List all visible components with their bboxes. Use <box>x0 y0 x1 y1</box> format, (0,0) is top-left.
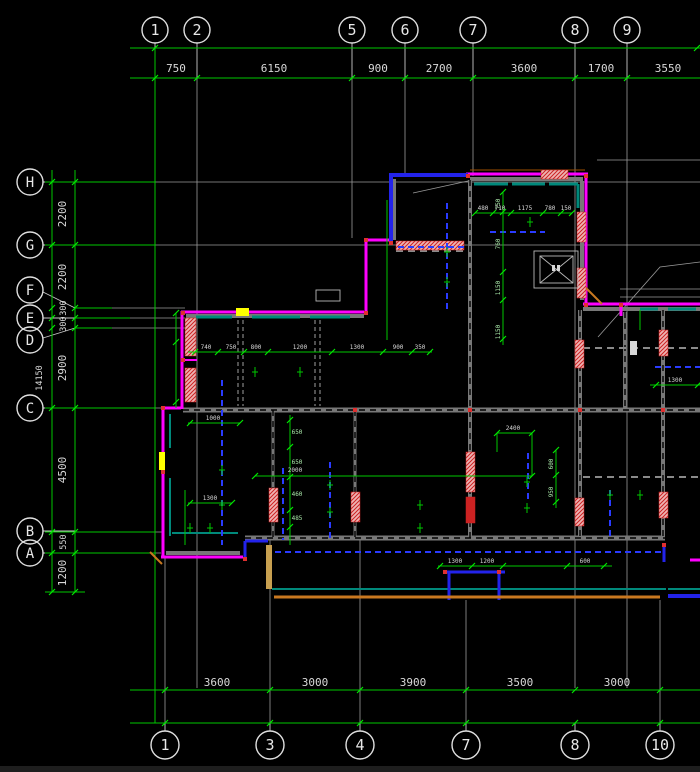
structural-plan-canvas: 1 2 5 6 7 8 9 1 3 4 7 8 10 H G F E D C B… <box>0 0 700 772</box>
svg-text:2400: 2400 <box>506 425 521 432</box>
dim-top-5: 1700 <box>588 62 615 75</box>
svg-text:1300: 1300 <box>668 377 683 384</box>
svg-text:900: 900 <box>393 344 404 351</box>
dim-bot-3: 3500 <box>507 676 534 689</box>
svg-text:600: 600 <box>580 558 591 565</box>
svg-text:1300: 1300 <box>203 495 218 502</box>
dimension-labels: 750 6150 900 2700 3600 1700 3550 3600 30… <box>35 62 681 689</box>
dim-left-6: 550 <box>59 534 69 549</box>
svg-text:485: 485 <box>292 515 303 522</box>
svg-text:1150: 1150 <box>495 280 502 295</box>
elevator-shaft-symbol <box>534 251 578 288</box>
dim-left-overall: 14150 <box>35 365 45 391</box>
building-walls <box>150 170 700 600</box>
dim-left-5: 4500 <box>56 457 69 484</box>
dim-top-4: 3600 <box>511 62 538 75</box>
grid-label-top-7: 7 <box>468 21 477 39</box>
svg-text:1200: 1200 <box>293 344 308 351</box>
beam-centerlines <box>222 203 700 552</box>
grid-label-top-1: 1 <box>150 21 159 39</box>
dim-left-3: 300 <box>59 316 69 331</box>
window-symbol <box>316 290 340 301</box>
svg-text:800: 800 <box>251 344 262 351</box>
grid-label-left-F: F <box>26 283 34 299</box>
dimension-lines <box>45 45 700 726</box>
svg-text:650: 650 <box>292 459 303 466</box>
grid-bubble-labels: 1 2 5 6 7 8 9 1 3 4 7 8 10 H G F E D C B… <box>26 21 669 754</box>
dim-left-4: 2900 <box>56 355 69 382</box>
grid-label-top-5: 5 <box>347 21 356 39</box>
svg-text:1300: 1300 <box>350 344 365 351</box>
viewport-bottom-edge <box>0 766 700 772</box>
grid-label-left-G: G <box>26 238 34 254</box>
dim-top-2: 900 <box>368 62 388 75</box>
grid-label-top-8: 8 <box>570 21 579 39</box>
dim-top-1: 6150 <box>261 62 288 75</box>
svg-text:740: 740 <box>201 344 212 351</box>
svg-text:780: 780 <box>545 205 556 212</box>
dim-top-6: 3550 <box>655 62 682 75</box>
grid-label-left-E: E <box>26 311 34 327</box>
grid-label-top-2: 2 <box>192 21 201 39</box>
dim-bot-0: 3600 <box>204 676 231 689</box>
grid-label-left-A: A <box>26 546 35 562</box>
grid-label-bot-8: 8 <box>570 736 579 754</box>
grid-label-bot-7: 7 <box>461 736 470 754</box>
grid-label-left-B: B <box>26 524 34 540</box>
grid-label-left-C: C <box>26 401 34 417</box>
svg-text:950: 950 <box>548 486 555 497</box>
dim-top-3: 2700 <box>426 62 453 75</box>
dim-left-2: 300 <box>59 300 69 315</box>
svg-text:150: 150 <box>561 205 572 212</box>
svg-text:760: 760 <box>495 238 502 249</box>
dim-top-0: 750 <box>166 62 186 75</box>
svg-text:600: 600 <box>548 458 555 469</box>
svg-text:750: 750 <box>226 344 237 351</box>
svg-text:1200: 1200 <box>480 558 495 565</box>
grid-label-left-D: D <box>26 333 34 349</box>
dim-bot-1: 3000 <box>302 676 329 689</box>
tan-wall-segment <box>266 545 272 589</box>
svg-text:650: 650 <box>292 429 303 436</box>
svg-text:1000: 1000 <box>206 415 221 422</box>
wall-tag-box <box>630 341 637 355</box>
svg-text:750: 750 <box>495 198 502 209</box>
dim-bot-2: 3900 <box>400 676 427 689</box>
yellow-highlights <box>159 308 249 470</box>
grid-label-bot-10: 10 <box>651 736 669 754</box>
dim-left-0: 2200 <box>56 201 69 228</box>
grid-label-top-6: 6 <box>400 21 409 39</box>
svg-text:1175: 1175 <box>518 205 533 212</box>
dim-left-7: 1200 <box>56 560 69 587</box>
grid-label-bot-4: 4 <box>355 736 364 754</box>
svg-text:460: 460 <box>292 491 303 498</box>
svg-text:2000: 2000 <box>288 467 303 474</box>
grid-label-top-9: 9 <box>622 21 631 39</box>
svg-text:1300: 1300 <box>448 558 463 565</box>
svg-text:350: 350 <box>415 344 426 351</box>
column-markers <box>161 174 666 574</box>
svg-text:1150: 1150 <box>495 324 502 339</box>
dim-bot-4: 3000 <box>604 676 631 689</box>
dim-left-1: 2200 <box>56 264 69 291</box>
cad-drawing-viewport[interactable]: 1 2 5 6 7 8 9 1 3 4 7 8 10 H G F E D C B… <box>0 0 700 772</box>
grid-bubbles <box>17 17 674 759</box>
svg-text:480: 480 <box>478 205 489 212</box>
grid-label-bot-1: 1 <box>160 736 169 754</box>
axis-grid-lines <box>43 43 700 731</box>
grid-label-bot-3: 3 <box>265 736 274 754</box>
hidden-edge-lines <box>238 320 320 406</box>
grid-label-left-H: H <box>26 175 34 191</box>
